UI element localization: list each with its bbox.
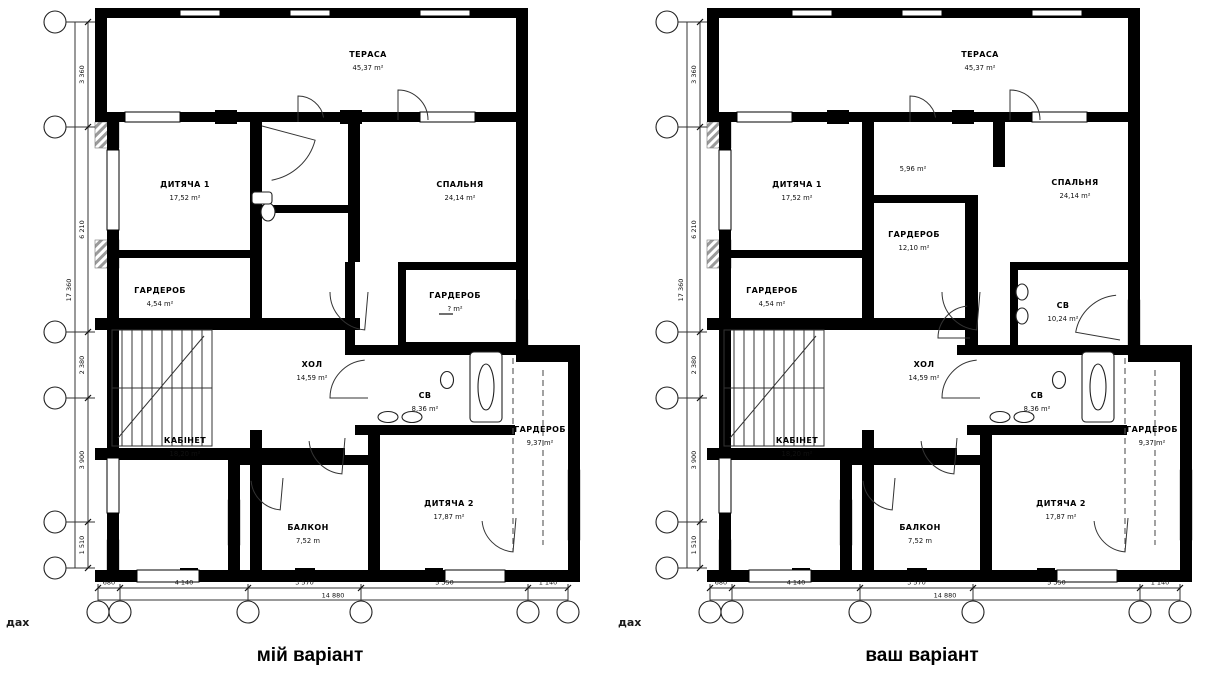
room-area: 14,59 m² (909, 374, 940, 382)
fixture (1016, 308, 1028, 324)
room-label: ТЕРАСА (961, 50, 999, 59)
dimension-label: 5 350 (435, 579, 454, 587)
window (902, 10, 942, 16)
window (719, 150, 731, 230)
room-area: 8,36 m² (1024, 405, 1051, 413)
dimension-label: 6 210 (690, 220, 698, 239)
axis-bubble (44, 387, 66, 409)
wall (1010, 262, 1140, 270)
axis-bubble (656, 11, 678, 33)
dimension-total: 17 360 (677, 279, 685, 302)
fixture (1053, 372, 1066, 389)
room-label: ХОЛ (914, 360, 935, 369)
room-label: ТЕРАСА (349, 50, 387, 59)
room-label: КАБІНЕТ (164, 436, 206, 445)
room-area: 8,36 m² (412, 405, 439, 413)
wall (707, 18, 719, 114)
door-swing (1076, 295, 1120, 340)
window (180, 10, 220, 16)
door-swing (262, 126, 315, 180)
room-area: 4,54 m² (147, 300, 174, 308)
column-pier (952, 110, 974, 124)
dimension-label: 680 (103, 579, 115, 587)
wall (840, 465, 852, 575)
axis-bubble (44, 321, 66, 343)
room-area: 7,52 m (296, 537, 320, 545)
dimension-label: 3 360 (78, 65, 86, 84)
dimension-label: 3 360 (690, 65, 698, 84)
axis-bubble (44, 511, 66, 533)
wall (95, 18, 107, 114)
axis-bubble (656, 387, 678, 409)
room-label: СПАЛЬНЯ (436, 180, 483, 189)
wall (398, 262, 528, 270)
axis-bubble (656, 557, 678, 579)
room-area: 45,37 m² (965, 64, 996, 72)
fixture (252, 192, 272, 204)
axis-bubble (656, 321, 678, 343)
room-area: 17,87 m² (434, 513, 465, 521)
wall (228, 455, 380, 465)
wall (516, 18, 528, 114)
dimension-label: 2 380 (78, 356, 86, 375)
window (125, 112, 180, 122)
axis-bubble (44, 11, 66, 33)
window (792, 10, 832, 16)
room-area: 4,54 m² (759, 300, 786, 308)
fixture (1016, 284, 1028, 300)
axis-bubble (656, 511, 678, 533)
wall (516, 122, 528, 362)
room-area: 12,10 m² (899, 244, 930, 252)
dimension-label: 3 570 (295, 579, 314, 587)
wall (719, 250, 864, 258)
room-area: 9,37 m² (527, 439, 554, 447)
dimension-total: 14 880 (322, 592, 345, 600)
axis-bubble (721, 601, 743, 623)
caption-my-variant: мій варіант (257, 645, 364, 667)
window (420, 10, 470, 16)
dimension-total: 17 360 (65, 279, 73, 302)
wall (1128, 122, 1140, 362)
room-label: ДИТЯЧА 1 (772, 180, 822, 189)
room-area: 17,52 m² (782, 194, 813, 202)
room-label: ГАРДЕРОБ (888, 230, 940, 239)
axis-bubble (962, 601, 984, 623)
staircase (112, 330, 212, 446)
wall (355, 425, 515, 435)
axis-bubble (1129, 601, 1151, 623)
room-area: 18,20 m² (782, 450, 813, 458)
room-area: 24,14 m² (445, 194, 476, 202)
fixture (402, 412, 422, 423)
wall (967, 425, 1127, 435)
room-area: 7,52 m (908, 537, 932, 545)
room-area: 9,37 m² (1139, 439, 1166, 447)
axis-bubble (849, 601, 871, 623)
room-area: 45,37 m² (353, 64, 384, 72)
room-label: ГАРДЕРОБ (134, 286, 186, 295)
roof-watermark-right: дах (618, 616, 641, 629)
room-label: ГАРДЕРОБ (1126, 425, 1178, 434)
dimension-label: 3 900 (78, 451, 86, 470)
axis-bubble (1169, 601, 1191, 623)
wall (348, 122, 360, 262)
column-pier (340, 110, 362, 124)
window (445, 570, 505, 582)
roof-watermark-left: дах (6, 616, 29, 629)
dimension-label: 2 380 (690, 356, 698, 375)
wall (993, 122, 1005, 167)
room-label: БАЛКОН (899, 523, 940, 532)
room-area: 17,52 m² (170, 194, 201, 202)
axis-bubble (87, 601, 109, 623)
window (737, 112, 792, 122)
room-area: 14,59 m² (297, 374, 328, 382)
room-label: ДИТЯЧА 2 (1036, 499, 1086, 508)
wall (868, 195, 978, 203)
wall (1010, 262, 1018, 350)
dimension-label: 6 210 (78, 220, 86, 239)
wall (250, 122, 262, 320)
wall (568, 362, 580, 582)
wall (840, 455, 992, 465)
floor-plans-drawing: ТЕРАСА45,37 m²ДИТЯЧА 117,52 m²СПАЛЬНЯ24,… (0, 0, 1218, 691)
stair-direction-arrow (118, 336, 204, 438)
room-area: ? m² (447, 305, 462, 313)
caption-your-variant: ваш варіант (865, 645, 978, 667)
fixture (1014, 412, 1034, 423)
dimension-label: 5 350 (1047, 579, 1066, 587)
dimension-label: 1 140 (539, 579, 558, 587)
floor-plan-sheet: ТЕРАСА45,37 m²ДИТЯЧА 117,52 m²СПАЛЬНЯ24,… (0, 0, 1218, 691)
window (290, 10, 330, 16)
room-area: 17,87 m² (1046, 513, 1077, 521)
door-swing (942, 360, 980, 398)
door-swing (330, 360, 368, 398)
axis-bubble (557, 601, 579, 623)
door-swing (482, 518, 516, 552)
wall (965, 195, 978, 355)
window (1057, 570, 1117, 582)
wall (707, 318, 972, 330)
axis-bubble (44, 557, 66, 579)
dimension-label: 1 510 (690, 536, 698, 555)
wall (345, 262, 355, 355)
wall (368, 430, 380, 570)
window (107, 458, 119, 513)
column-pier (215, 110, 237, 124)
window (719, 458, 731, 513)
staircase (724, 330, 824, 446)
room-area: 10,24 m² (1048, 315, 1079, 323)
dimension-label: 4 140 (175, 579, 194, 587)
room-area: 5,96 m² (900, 165, 927, 173)
window (1032, 10, 1082, 16)
room-label: ХОЛ (302, 360, 323, 369)
fixture (261, 203, 275, 221)
wall (95, 318, 360, 330)
dimension-label: 680 (715, 579, 727, 587)
axis-bubble (517, 601, 539, 623)
room-label: БАЛКОН (287, 523, 328, 532)
wall (862, 122, 874, 320)
room-label: ГАРДЕРОБ (429, 291, 481, 300)
room-area: 18,20 m² (170, 450, 201, 458)
wall (1128, 18, 1140, 114)
wall (1180, 362, 1192, 582)
right-plan: ТЕРАСА45,37 m²ДИТЯЧА 117,52 m²5,96 m²СПА… (656, 8, 1192, 623)
axis-bubble (109, 601, 131, 623)
room-label: ГАРДЕРОБ (746, 286, 798, 295)
room-label: СВ (419, 391, 432, 400)
room-label: ДИТЯЧА 1 (160, 180, 210, 189)
axis-bubble (237, 601, 259, 623)
dimension-label: 3 570 (907, 579, 926, 587)
room-label: СВ (1057, 301, 1070, 310)
wall (107, 250, 252, 258)
axis-bubble (44, 116, 66, 138)
wall (398, 262, 406, 350)
dimension-label: 1 140 (1151, 579, 1170, 587)
room-label: КАБІНЕТ (776, 436, 818, 445)
window (107, 150, 119, 230)
stair-direction-arrow (730, 336, 816, 438)
room-label: ДИТЯЧА 2 (424, 499, 474, 508)
column-pier (827, 110, 849, 124)
fixture (441, 372, 454, 389)
dimension-total: 14 880 (934, 592, 957, 600)
axis-bubble (656, 116, 678, 138)
dimension-label: 3 900 (690, 451, 698, 470)
wall (980, 430, 992, 570)
dimension-label: 1 510 (78, 536, 86, 555)
room-area: 24,14 m² (1060, 192, 1091, 200)
fixture (990, 412, 1010, 423)
wall (957, 345, 1192, 355)
fixture (1090, 364, 1106, 410)
wall (398, 342, 528, 350)
room-label: ГАРДЕРОБ (514, 425, 566, 434)
wall (228, 465, 240, 575)
fixture (478, 364, 494, 410)
room-label: СВ (1031, 391, 1044, 400)
room-label: СПАЛЬНЯ (1051, 178, 1098, 187)
axis-bubble (350, 601, 372, 623)
door-swing (1094, 518, 1128, 552)
dimension-label: 4 140 (787, 579, 806, 587)
left-plan: ТЕРАСА45,37 m²ДИТЯЧА 117,52 m²СПАЛЬНЯ24,… (44, 8, 580, 623)
axis-bubble (699, 601, 721, 623)
fixture (378, 412, 398, 423)
